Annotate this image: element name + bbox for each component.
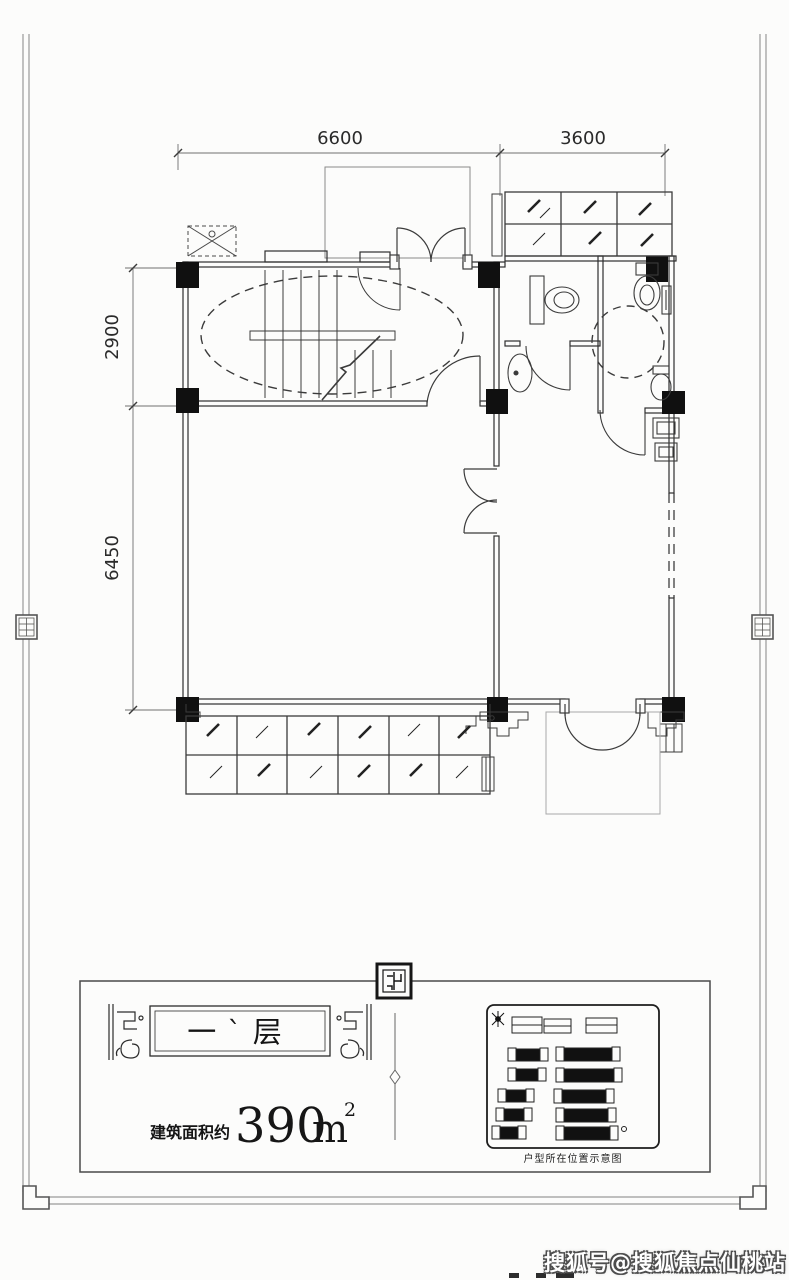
dimension-top-6600: 6600	[317, 128, 363, 149]
legend-caption: 户型所在位置示意图	[524, 1152, 623, 1165]
cartouche-scroll-right	[337, 1004, 371, 1060]
toilet-a-tank	[530, 276, 544, 324]
watermark: 搜狐号@搜狐焦点仙桃站	[544, 1247, 786, 1277]
bathroom-a-door	[526, 346, 570, 390]
area-text: 建筑面积约 390 m 2	[150, 1098, 356, 1154]
glass-marks-top-band	[528, 200, 653, 246]
border-side-ornament-right	[752, 615, 773, 639]
area-prefix: 建筑面积约	[150, 1123, 230, 1142]
floor-plan-drawing: 6600 3600 2900 6450	[0, 0, 789, 1280]
stair-handrail	[250, 331, 395, 340]
dimension-left-6450: 6450	[102, 535, 123, 581]
window-band-bottom	[186, 704, 490, 794]
dimension-top	[174, 144, 669, 196]
area-unit: m	[312, 1107, 348, 1151]
bidet-bowl	[651, 374, 671, 400]
living-double-door	[464, 469, 497, 533]
bottom-corbels	[480, 712, 684, 791]
dimension-top-3600: 3600	[560, 128, 606, 149]
ac-unit-box	[188, 226, 236, 256]
structural-columns	[176, 256, 685, 722]
border-side-ornament-left	[16, 615, 37, 639]
floor-label: 一`层	[187, 1015, 293, 1049]
floor-plan-page: 6600 3600 2900 6450	[0, 0, 789, 1280]
dimension-left-2900: 2900	[102, 314, 123, 360]
stair-dashed-ellipse	[201, 276, 463, 394]
compass-icon	[492, 1011, 504, 1027]
right-wall-dashed-opening	[669, 493, 674, 598]
bidet-tank	[653, 366, 669, 374]
stair-to-living-door	[427, 356, 480, 403]
title-divider	[390, 1013, 400, 1140]
walls	[183, 251, 676, 704]
bathroom	[508, 263, 679, 461]
sink-a	[508, 354, 532, 392]
meander-emblem	[377, 964, 411, 998]
dimension-left	[125, 264, 176, 714]
entrance-porch	[546, 712, 660, 814]
bathroom-b-door	[600, 410, 645, 455]
window-band-top-right	[492, 192, 672, 256]
stair-inner-door	[358, 268, 400, 310]
area-exponent: 2	[344, 1099, 356, 1121]
staircase	[201, 268, 463, 400]
location-legend	[487, 1005, 659, 1148]
cartouche-scroll-left	[109, 1004, 143, 1060]
entrance-double-door	[560, 699, 645, 750]
stair-direction-line	[322, 336, 380, 400]
entry-double-door-top	[390, 228, 472, 269]
legend-buildings-outline	[512, 1017, 617, 1033]
legend-buildings-filled	[492, 1047, 627, 1140]
